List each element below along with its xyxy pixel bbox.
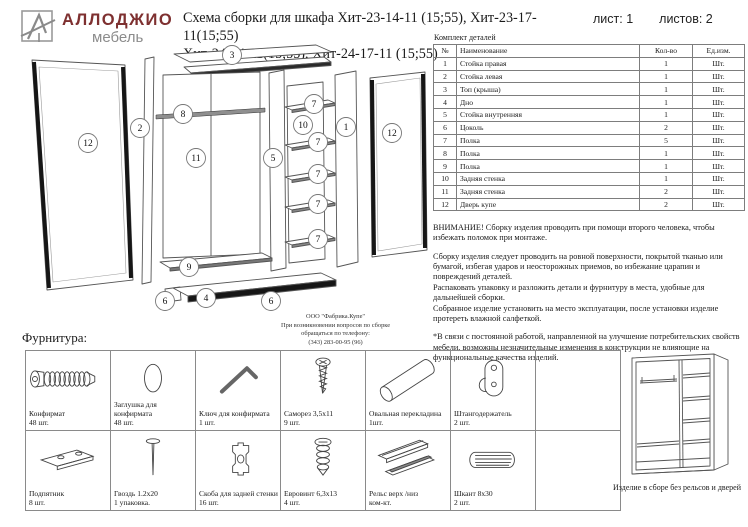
svg-text:9: 9 xyxy=(187,263,192,273)
part-left-door xyxy=(32,60,133,290)
svg-text:7: 7 xyxy=(316,170,321,180)
sheet-info: лист: 1 листов: 2 xyxy=(593,12,743,26)
table-row: 7Полка5Шт. xyxy=(434,134,745,147)
hardware-caption: Гвоздь 1.2х201 упаковка. xyxy=(114,490,193,508)
hardware-item-qty: 2 шт. xyxy=(454,499,533,508)
table-cell: 1 xyxy=(640,57,693,70)
svg-text:7: 7 xyxy=(316,200,321,210)
hardware-item-qty: 1шт. xyxy=(369,419,448,428)
part-bottom-assembly xyxy=(165,273,336,302)
assembly-notes: ВНИМАНИЕ! Сборку изделия проводить при п… xyxy=(433,223,745,363)
callout-3: 3 xyxy=(223,46,242,65)
table-cell: 10 xyxy=(434,172,457,185)
hardware-item-qty: 8 шт. xyxy=(29,499,108,508)
hardware-caption: Штангодержатель2 шт. xyxy=(454,410,533,428)
table-cell: 4 xyxy=(434,96,457,109)
hardware-cell: Штангодержатель2 шт. xyxy=(451,351,536,431)
table-cell: 1 xyxy=(640,160,693,173)
callout-10: 10 xyxy=(294,116,313,135)
hardware-cell-empty xyxy=(536,351,621,431)
hardware-item-qty: 2 шт. xyxy=(454,419,533,428)
table-cell: 1 xyxy=(640,147,693,160)
assembled-product-caption: Изделие в сборе без рельсов и дверей xyxy=(606,483,748,492)
hardware-cell: Подпятник8 шт. xyxy=(26,431,111,511)
table-cell: Шт. xyxy=(693,172,745,185)
brand-logo-icon xyxy=(19,8,57,46)
callout-9: 9 xyxy=(180,258,199,277)
table-cell: 6 xyxy=(434,121,457,134)
part-inner-stand xyxy=(269,70,286,271)
table-row: 12Дверь купе2Шт. xyxy=(434,198,745,211)
table-cell: 2 xyxy=(640,121,693,134)
svg-text:3: 3 xyxy=(230,51,235,61)
svg-text:7: 7 xyxy=(316,138,321,148)
hardware-caption: Ключ для конфирмата1 шт. xyxy=(199,410,278,428)
callout-1: 1 xyxy=(337,118,356,137)
assembled-product-drawing xyxy=(624,348,744,480)
foot-pad-icon xyxy=(26,434,110,484)
table-cell: 1 xyxy=(640,108,693,121)
table-cell: Стойка внутренняя xyxy=(457,108,640,121)
table-row: 11Задняя стенка2Шт. xyxy=(434,185,745,198)
factory-phone: (343) 283-00-95 (96) xyxy=(248,339,423,348)
table-cell: 3 xyxy=(434,83,457,96)
brand-name: АЛЛОДЖИО xyxy=(62,11,173,30)
svg-text:5: 5 xyxy=(271,154,276,164)
hardware-row: Конфирмат48 шт.Заглушка для конфирмата48… xyxy=(26,351,621,431)
sheets-total: листов: 2 xyxy=(659,12,713,26)
hardware-section-label: Фурнитура: xyxy=(22,330,87,346)
hardware-item-qty: 9 шт. xyxy=(284,419,363,428)
col-header-qty: Кол-во xyxy=(640,45,693,58)
callout-5: 5 xyxy=(264,149,283,168)
hardware-caption: Рельс верх /низком-кт. xyxy=(369,490,448,508)
callout-8: 8 xyxy=(174,105,193,124)
table-cell: 1 xyxy=(640,70,693,83)
table-cell: 2 xyxy=(434,70,457,83)
table-cell: 2 xyxy=(640,198,693,211)
table-cell: 1 xyxy=(434,57,457,70)
hardware-cell: Рельс верх /низком-кт. xyxy=(366,431,451,511)
table-row: 2Стойка левая1Шт. xyxy=(434,70,745,83)
hardware-caption: Евровинт 6,3х134 шт. xyxy=(284,490,363,508)
plug-icon xyxy=(111,354,195,404)
parts-table-body: 1Стойка правая1Шт.2Стойка левая1Шт.3Топ … xyxy=(434,57,745,211)
table-cell: 12 xyxy=(434,198,457,211)
svg-text:6: 6 xyxy=(269,297,274,307)
confirmat-screw-icon xyxy=(26,354,110,404)
table-row: 6Цоколь2Шт. xyxy=(434,121,745,134)
dowel-icon xyxy=(451,434,535,484)
table-cell: Дверь купе xyxy=(457,198,640,211)
hardware-cell: Конфирмат48 шт. xyxy=(26,351,111,431)
callout-12: 12 xyxy=(383,124,402,143)
brand-block: АЛЛОДЖИО мебель xyxy=(62,11,173,46)
svg-text:6: 6 xyxy=(163,297,168,307)
hardware-caption: Овальная перекладина1шт. xyxy=(369,410,448,428)
col-header-unit: Ед.изм. xyxy=(693,45,745,58)
table-cell: Полка xyxy=(457,147,640,160)
hardware-cell: Скоба для задней стенки16 шт. xyxy=(196,431,281,511)
hex-key-icon xyxy=(196,354,280,404)
table-cell: Стойка правая xyxy=(457,57,640,70)
table-cell: Шт. xyxy=(693,96,745,109)
note-place: Собранное изделие установить на место эк… xyxy=(433,304,745,325)
hardware-cell: Овальная перекладина1шт. xyxy=(366,351,451,431)
table-cell: Шт. xyxy=(693,108,745,121)
hardware-row: Подпятник8 шт.Гвоздь 1.2х201 упаковка.Ск… xyxy=(26,431,621,511)
callout-7: 7 xyxy=(309,195,328,214)
table-row: 8Полка1Шт. xyxy=(434,147,745,160)
hardware-caption: Саморез 3,5х119 шт. xyxy=(284,410,363,428)
table-cell: 1 xyxy=(640,172,693,185)
svg-text:8: 8 xyxy=(181,110,186,120)
table-cell: Шт. xyxy=(693,185,745,198)
callout-6: 6 xyxy=(156,292,175,311)
table-cell: Шт. xyxy=(693,70,745,83)
parts-table: № Наименование Кол-во Ед.изм. 1Стойка пр… xyxy=(433,44,745,211)
rod-holder-icon xyxy=(451,354,535,404)
rail-icon xyxy=(366,434,450,484)
factory-note-line: При возникновении вопросов по сборке xyxy=(248,322,423,331)
table-cell: 11 xyxy=(434,185,457,198)
screw-icon xyxy=(281,354,365,404)
hardware-item-qty: 48 шт. xyxy=(114,419,193,428)
hardware-cell: Саморез 3,5х119 шт. xyxy=(281,351,366,431)
table-cell: Шт. xyxy=(693,160,745,173)
hardware-cell: Ключ для конфирмата1 шт. xyxy=(196,351,281,431)
hardware-cell: Заглушка для конфирмата48 шт. xyxy=(111,351,196,431)
table-row: 3Топ (крыша)1Шт. xyxy=(434,83,745,96)
bracket-icon xyxy=(196,434,280,484)
col-header-num: № xyxy=(434,45,457,58)
svg-text:7: 7 xyxy=(316,235,321,245)
table-cell: 9 xyxy=(434,160,457,173)
svg-text:4: 4 xyxy=(204,294,209,304)
sheet-number: лист: 1 xyxy=(593,12,633,26)
note-surface: Сборку изделия следует проводить на ровн… xyxy=(433,252,745,283)
col-header-name: Наименование xyxy=(457,45,640,58)
table-row: 10Задняя стенка1Шт. xyxy=(434,172,745,185)
callout-12: 12 xyxy=(79,134,98,153)
table-cell: Задняя стенка xyxy=(457,185,640,198)
hardware-caption: Подпятник8 шт. xyxy=(29,490,108,508)
hardware-caption: Шкант 8х302 шт. xyxy=(454,490,533,508)
hardware-caption: Конфирмат48 шт. xyxy=(29,410,108,428)
hardware-item-qty: 48 шт. xyxy=(29,419,108,428)
hardware-item-qty: 16 шт. xyxy=(199,499,278,508)
svg-text:12: 12 xyxy=(83,139,93,149)
table-cell: Цоколь xyxy=(457,121,640,134)
svg-text:12: 12 xyxy=(387,129,397,139)
callout-7: 7 xyxy=(309,133,328,152)
table-cell: Шт. xyxy=(693,83,745,96)
callout-7: 7 xyxy=(309,230,328,249)
hardware-item-qty: 1 упаковка. xyxy=(114,499,193,508)
table-cell: 7 xyxy=(434,134,457,147)
exploded-view-diagram: 3122811571011277779646 xyxy=(18,42,430,338)
part-back-wall-large xyxy=(163,72,260,258)
factory-note: ООО "Фабрика.Купе" При возникновении воп… xyxy=(248,313,423,348)
table-cell: Дно xyxy=(457,96,640,109)
assembly-instruction-page: АЛЛОДЖИО мебель Схема сборки для шкафа Х… xyxy=(0,0,748,527)
table-cell: 5 xyxy=(434,108,457,121)
callout-2: 2 xyxy=(131,119,150,138)
warning-note: ВНИМАНИЕ! Сборку изделия проводить при п… xyxy=(433,223,745,244)
callout-7: 7 xyxy=(305,95,324,114)
callout-11: 11 xyxy=(187,149,206,168)
table-cell: 2 xyxy=(640,185,693,198)
hardware-table: Конфирмат48 шт.Заглушка для конфирмата48… xyxy=(25,350,621,511)
table-cell: Стойка левая xyxy=(457,70,640,83)
table-cell: Шт. xyxy=(693,134,745,147)
hardware-cell-empty xyxy=(536,431,621,511)
hardware-cell: Евровинт 6,3х134 шт. xyxy=(281,431,366,511)
hardware-item-qty: 4 шт. xyxy=(284,499,363,508)
hardware-item-qty: 1 шт. xyxy=(199,419,278,428)
table-cell: Шт. xyxy=(693,57,745,70)
part-right-door xyxy=(370,72,427,257)
svg-text:10: 10 xyxy=(298,121,308,131)
callout-6: 6 xyxy=(262,292,281,311)
oval-rod-icon xyxy=(366,354,450,404)
callout-7: 7 xyxy=(309,165,328,184)
svg-text:7: 7 xyxy=(312,100,317,110)
table-cell: Шт. xyxy=(693,147,745,160)
factory-note-line: обращаться по телефону: xyxy=(248,330,423,339)
part-right-stand xyxy=(335,71,358,267)
table-cell: Шт. xyxy=(693,198,745,211)
table-cell: Полка xyxy=(457,160,640,173)
table-cell: Задняя стенка xyxy=(457,172,640,185)
table-cell: 1 xyxy=(640,96,693,109)
hardware-item-qty: ком-кт. xyxy=(369,499,448,508)
hardware-caption: Заглушка для конфирмата48 шт. xyxy=(114,401,193,428)
hardware-cell: Гвоздь 1.2х201 упаковка. xyxy=(111,431,196,511)
parts-table-caption: Комплект деталей xyxy=(434,33,496,42)
svg-text:2: 2 xyxy=(138,124,143,134)
table-row: 5Стойка внутренняя1Шт. xyxy=(434,108,745,121)
hardware-item-name: Заглушка для конфирмата xyxy=(114,401,193,419)
table-cell: 1 xyxy=(640,83,693,96)
parts-table-header-row: № Наименование Кол-во Ед.изм. xyxy=(434,45,745,58)
callout-4: 4 xyxy=(197,289,216,308)
hardware-caption: Скоба для задней стенки16 шт. xyxy=(199,490,278,508)
table-row: 9Полка1Шт. xyxy=(434,160,745,173)
note-unpack: Распаковать упаковку и разложить детали … xyxy=(433,283,745,304)
title-line-1: Схема сборки для шкафа Хит-23-14-11 (15;… xyxy=(183,9,588,45)
hardware-grid: Конфирмат48 шт.Заглушка для конфирмата48… xyxy=(26,351,621,511)
euro-screw-icon xyxy=(281,434,365,484)
part-left-stand xyxy=(142,57,154,284)
table-cell: Шт. xyxy=(693,121,745,134)
table-cell: 8 xyxy=(434,147,457,160)
table-row: 1Стойка правая1Шт. xyxy=(434,57,745,70)
hardware-cell: Шкант 8х302 шт. xyxy=(451,431,536,511)
nail-icon xyxy=(111,434,195,484)
table-cell: 5 xyxy=(640,134,693,147)
svg-text:11: 11 xyxy=(191,154,200,164)
svg-text:1: 1 xyxy=(344,123,349,133)
factory-name: ООО "Фабрика.Купе" xyxy=(248,313,423,322)
table-cell: Полка xyxy=(457,134,640,147)
table-cell: Топ (крыша) xyxy=(457,83,640,96)
table-row: 4Дно1Шт. xyxy=(434,96,745,109)
